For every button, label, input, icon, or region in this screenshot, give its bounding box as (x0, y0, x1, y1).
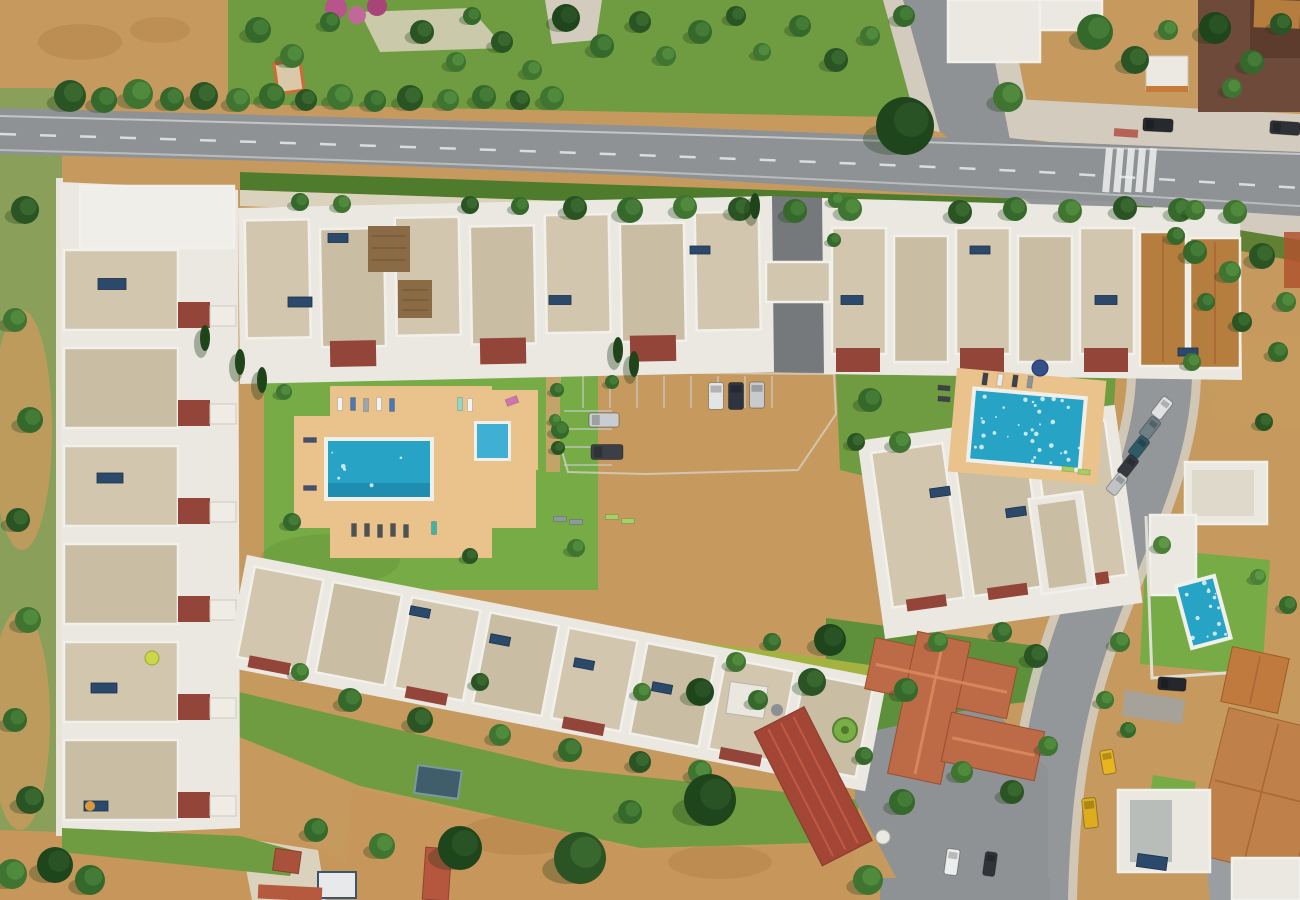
tree-crown (339, 197, 350, 208)
tree-crown (1116, 634, 1128, 646)
row-west-top-roof (80, 186, 234, 248)
roof-unit (1018, 236, 1072, 362)
tree-crown (1120, 198, 1134, 212)
tree-crown (498, 33, 511, 46)
sun-lounger (1012, 375, 1019, 388)
tree-crown (845, 199, 859, 213)
car (589, 413, 619, 427)
tree-crown (1191, 202, 1203, 214)
tree-crown (695, 22, 709, 36)
roof-unit (545, 214, 611, 333)
dark-shed (414, 765, 461, 799)
sparkle (370, 483, 374, 487)
bougainvillea (348, 6, 366, 24)
solar-panel (98, 279, 126, 290)
tree-crown (345, 690, 359, 704)
roof-unit (470, 225, 536, 344)
car (1158, 677, 1187, 692)
red-structure-bl (273, 848, 302, 873)
car-windshield (752, 385, 763, 392)
tr-building-1 (948, 0, 1040, 62)
car-windshield (1084, 801, 1095, 810)
tree-crown (1277, 15, 1290, 28)
sun-lounger (997, 374, 1004, 387)
cypress-tree (613, 337, 623, 363)
tree-crown (10, 710, 24, 724)
tree-crown (1226, 263, 1239, 276)
tree-crown (377, 835, 393, 851)
sun-lounger (938, 385, 950, 391)
roof-unit (64, 446, 178, 526)
sun-lounger (458, 398, 463, 411)
tree-crown (866, 28, 878, 40)
terrace-accent (330, 340, 376, 367)
roof-unit (894, 236, 948, 362)
tree-crown (861, 749, 872, 760)
tree-crown (1007, 782, 1021, 796)
sun-lounger (365, 524, 370, 537)
tree-crown (625, 802, 639, 816)
tree-crown (570, 198, 584, 212)
tree-crown (10, 310, 24, 324)
tree-crown (636, 753, 649, 766)
solar-panel (97, 473, 123, 483)
sun-lounger (377, 398, 382, 411)
tree-crown (13, 510, 27, 524)
tree-crown (1159, 538, 1170, 549)
white-shed-bl (318, 872, 356, 898)
car (729, 383, 744, 410)
tree-crown (1257, 245, 1273, 261)
terrace-accent (960, 348, 1004, 372)
umbrella-yellow (145, 651, 159, 665)
sun-lounger (304, 486, 317, 491)
pool2-water (970, 391, 1084, 468)
tree-crown (48, 850, 70, 872)
sun-lounger (938, 396, 950, 402)
sun-lounger (1078, 469, 1090, 475)
tree-crown (1088, 17, 1110, 39)
sun-lounger (338, 398, 343, 411)
tree-crown (831, 50, 845, 64)
sun-lounger (606, 515, 619, 520)
pool-main-deep (328, 483, 430, 497)
terrace-accent (178, 498, 210, 524)
tree-crown (20, 199, 37, 216)
tree-crown (516, 92, 528, 104)
sun-lounger (1027, 376, 1034, 389)
tree-crown (467, 198, 478, 209)
field-patch (38, 24, 122, 60)
tree-crown (1102, 693, 1113, 704)
tree-crown (6, 862, 24, 880)
fence-right (1284, 232, 1300, 288)
sun-lounger (404, 525, 409, 538)
tree-crown (732, 8, 744, 20)
car (1081, 797, 1098, 828)
tree-crown (452, 54, 464, 66)
car-windshield (594, 447, 602, 458)
tree-crown (1173, 229, 1184, 240)
tree-crown (561, 7, 578, 24)
sparkle (337, 477, 340, 480)
tree-crown (824, 627, 843, 646)
tree-crown (597, 36, 611, 50)
car-windshield (986, 855, 995, 862)
tree-crown (700, 779, 731, 810)
tree-crown (479, 87, 493, 101)
tree-crown (289, 515, 300, 526)
tree-crown (297, 195, 308, 206)
tree-crown (469, 9, 480, 20)
tree-crown (853, 435, 864, 446)
tree-crown (1282, 294, 1294, 306)
terrace-accent (178, 400, 210, 426)
solar-panel (970, 246, 990, 254)
car-windshield (731, 386, 742, 393)
car-windshield (948, 851, 958, 859)
tree-crown (732, 654, 744, 666)
tr-shed (1146, 56, 1188, 90)
roof-shed (210, 600, 236, 620)
tree-crown (1189, 355, 1200, 366)
tree-crown (1274, 344, 1286, 356)
tree-crown (199, 85, 216, 102)
tree-crown (796, 17, 809, 30)
tree-crown (1247, 52, 1261, 66)
roof-shed (210, 502, 236, 522)
tree-crown (1255, 570, 1265, 580)
orange-villa-roof (1221, 647, 1289, 714)
tree-crown (64, 83, 83, 102)
tree-crown (1190, 242, 1204, 256)
tree-crown (639, 685, 650, 696)
tree-crown (1230, 202, 1244, 216)
roof-unit (64, 250, 178, 330)
tree-crown (680, 197, 694, 211)
sparkle (331, 452, 333, 454)
tree-crown (934, 634, 946, 646)
tree-crown (287, 46, 301, 60)
car-windshield (1146, 120, 1154, 129)
roof-shed (210, 404, 236, 424)
tree-crown (901, 680, 915, 694)
cypress-tree (200, 325, 210, 351)
sun-lounger (304, 438, 317, 443)
car (1270, 120, 1300, 135)
roof-shed (210, 306, 236, 326)
tree-crown (807, 671, 824, 688)
sun-lounger (391, 524, 396, 537)
tree-crown (896, 433, 909, 446)
car (1143, 118, 1174, 133)
terrace-accent (178, 792, 210, 818)
tree-crown (1238, 314, 1250, 326)
solar-panel (328, 234, 348, 243)
sun-lounger (554, 517, 567, 522)
tree-crown (555, 442, 563, 450)
solar-panel (91, 683, 117, 693)
car-windshield (1161, 679, 1169, 688)
tree-crown (281, 385, 291, 395)
tree-crown (417, 22, 431, 36)
tree-crown (897, 791, 913, 807)
roof-unit (64, 348, 178, 428)
car-windshield (711, 386, 722, 393)
terrace-accent (836, 348, 880, 372)
terrace-accent (178, 596, 210, 622)
tree-crown (267, 85, 283, 101)
tree-crown (1261, 415, 1272, 426)
field-patch (130, 17, 190, 43)
car (591, 445, 623, 460)
tree-crown (1164, 22, 1176, 34)
tree-crown (1125, 723, 1135, 733)
tree-crown (99, 89, 115, 105)
tree-crown (415, 709, 431, 725)
sparkle (400, 456, 403, 459)
tree-crown (444, 91, 457, 104)
tree-crown (467, 549, 477, 559)
long-building-east (1029, 492, 1096, 595)
roof-unit (64, 544, 178, 624)
bus-stop-mark (1114, 128, 1138, 138)
villa-white-1-roof (1192, 470, 1254, 516)
sun-lounger (352, 524, 357, 537)
cypress-tree (257, 367, 267, 393)
tree-crown (565, 740, 579, 754)
bridge (766, 262, 830, 302)
solar-panel (288, 297, 312, 307)
cypress-tree (629, 351, 639, 377)
tree-crown (405, 87, 421, 103)
tree-crown (573, 541, 584, 552)
tree-crown (335, 86, 351, 102)
tree-crown (759, 45, 770, 56)
tree-crown (662, 48, 674, 60)
terrace-accent (480, 338, 526, 365)
roof-shed (210, 796, 236, 816)
solar-panel (841, 296, 863, 305)
sun-lounger (468, 399, 473, 412)
tree-crown (1209, 15, 1228, 34)
roof-unit (620, 223, 686, 342)
sun-lounger (432, 522, 437, 535)
br-white-building-2 (1232, 858, 1300, 900)
tree-crown (1285, 598, 1296, 609)
tree-crown (1130, 49, 1147, 66)
sun-lounger (570, 520, 583, 525)
tree-crown (1044, 738, 1056, 750)
solar-panel (1095, 296, 1117, 305)
tree-crown (998, 624, 1010, 636)
sun-lounger (351, 398, 356, 411)
round-lawn-center (841, 726, 849, 734)
tree-crown (790, 201, 804, 215)
solar-panel (690, 246, 710, 254)
roof-unit (245, 219, 311, 338)
umbrella-gray (771, 704, 783, 716)
sun-lounger (390, 399, 395, 412)
car (709, 383, 724, 410)
tree-crown (955, 202, 969, 216)
tree-crown (496, 726, 509, 739)
roof-shed (210, 698, 236, 718)
umbrella-orange (85, 801, 95, 811)
sun-lounger (622, 519, 635, 524)
roof-unit (64, 740, 178, 820)
car (750, 382, 765, 408)
tree-crown (25, 789, 42, 806)
tree-crown (547, 88, 561, 102)
tree-crown (84, 868, 102, 886)
tree-crown (23, 609, 39, 625)
cypress-tree (235, 349, 245, 375)
tree-crown (1031, 646, 1045, 660)
cypress-tree (750, 193, 760, 219)
car-windshield (1273, 123, 1281, 133)
terrace-accent (178, 694, 210, 720)
tree-crown (1203, 295, 1214, 306)
tree-crown (25, 409, 41, 425)
tree-crown (554, 384, 562, 392)
br-white-terrace (1130, 800, 1172, 862)
sun-lounger (982, 373, 989, 386)
tree-crown (1010, 199, 1024, 213)
umbrella-navy (1032, 360, 1048, 376)
pergola-1 (368, 226, 410, 272)
tree-crown (894, 102, 929, 137)
tree-crown (528, 62, 540, 74)
umbrella-white (876, 830, 890, 844)
tree-crown (311, 820, 325, 834)
tree-crown (958, 763, 971, 776)
tree-crown (132, 82, 150, 100)
tree-crown (167, 89, 181, 103)
tree-crown (553, 415, 560, 422)
pergola-2 (398, 280, 432, 318)
tree-crown (326, 14, 338, 26)
roof-unit (1080, 228, 1134, 354)
tree-crown (609, 376, 617, 384)
sun-lounger (378, 525, 383, 538)
tree-crown (900, 7, 913, 20)
tree-crown (695, 681, 712, 698)
aerial-photo (0, 0, 1300, 900)
sparkle (343, 468, 346, 471)
tree-crown (371, 92, 384, 105)
roof-unit (64, 642, 178, 722)
tree-crown (452, 830, 478, 856)
tree-crown (297, 665, 308, 676)
solar-panel (549, 296, 571, 305)
sun-lounger (1062, 466, 1074, 472)
car-windshield (592, 415, 600, 425)
tree-crown (570, 837, 601, 868)
tree-crown (754, 692, 766, 704)
tree-crown (233, 90, 247, 104)
tr-shed-accent (1146, 86, 1188, 92)
tree-crown (625, 199, 641, 215)
tree-crown (1065, 201, 1079, 215)
terrace-accent (178, 302, 210, 328)
tree-crown (831, 234, 839, 242)
field-patch (668, 845, 772, 879)
tree-crown (517, 199, 528, 210)
tree-crown (865, 390, 879, 404)
pool-kids-water (477, 424, 508, 458)
roof-unit (695, 211, 761, 330)
tree-crown (477, 675, 488, 686)
tree-crown (769, 635, 780, 646)
tree-crown (636, 13, 649, 26)
tree-crown (302, 91, 315, 104)
tree-crown (833, 193, 843, 203)
terrace-accent (1084, 348, 1128, 372)
roof-unit (832, 228, 886, 354)
tree-crown (253, 19, 269, 35)
sun-lounger (364, 399, 369, 412)
tree-crown (1002, 85, 1020, 103)
tree-crown (1228, 80, 1240, 92)
tree-crown (862, 868, 880, 886)
